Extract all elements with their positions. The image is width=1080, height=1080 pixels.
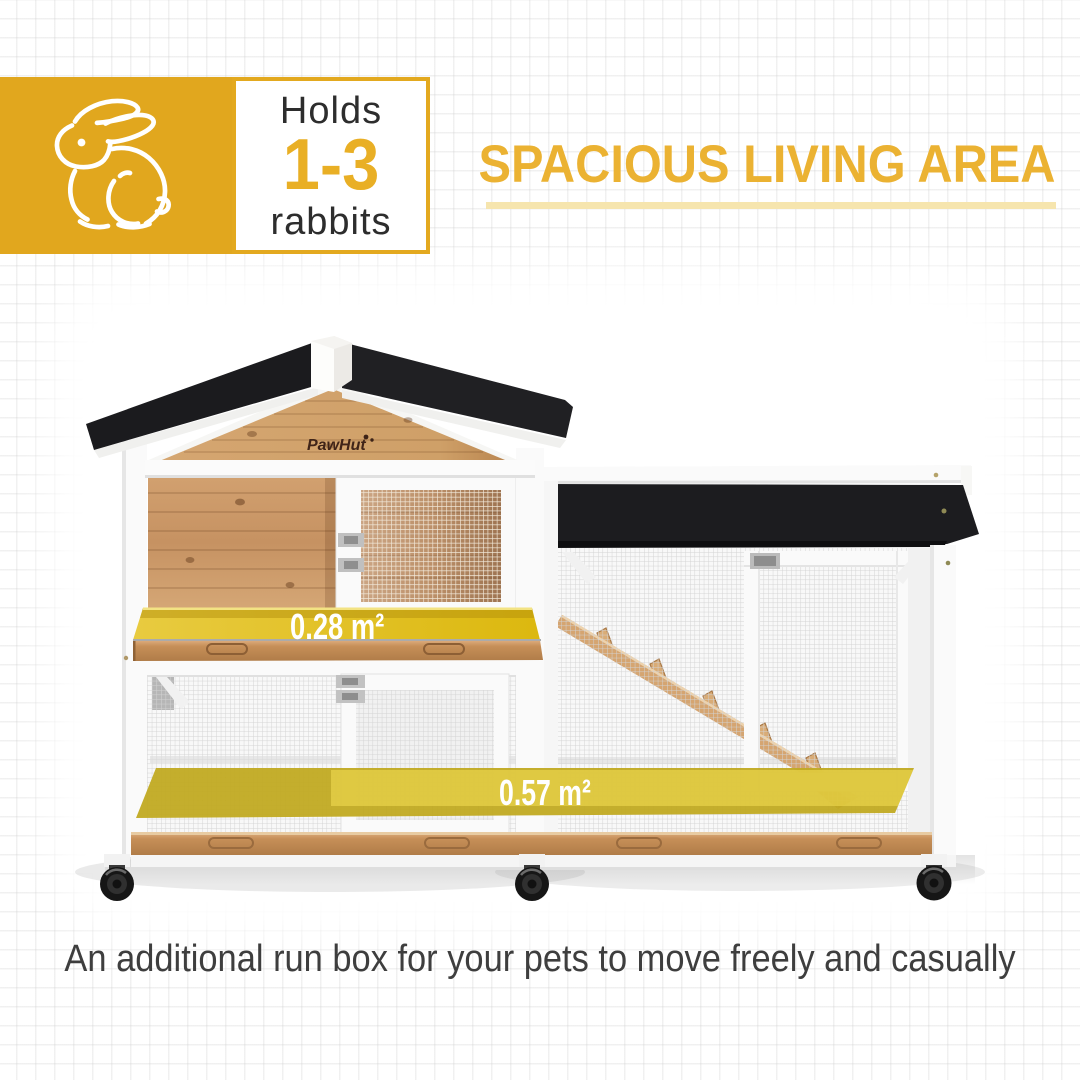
svg-text:PawHut: PawHut <box>307 437 366 454</box>
